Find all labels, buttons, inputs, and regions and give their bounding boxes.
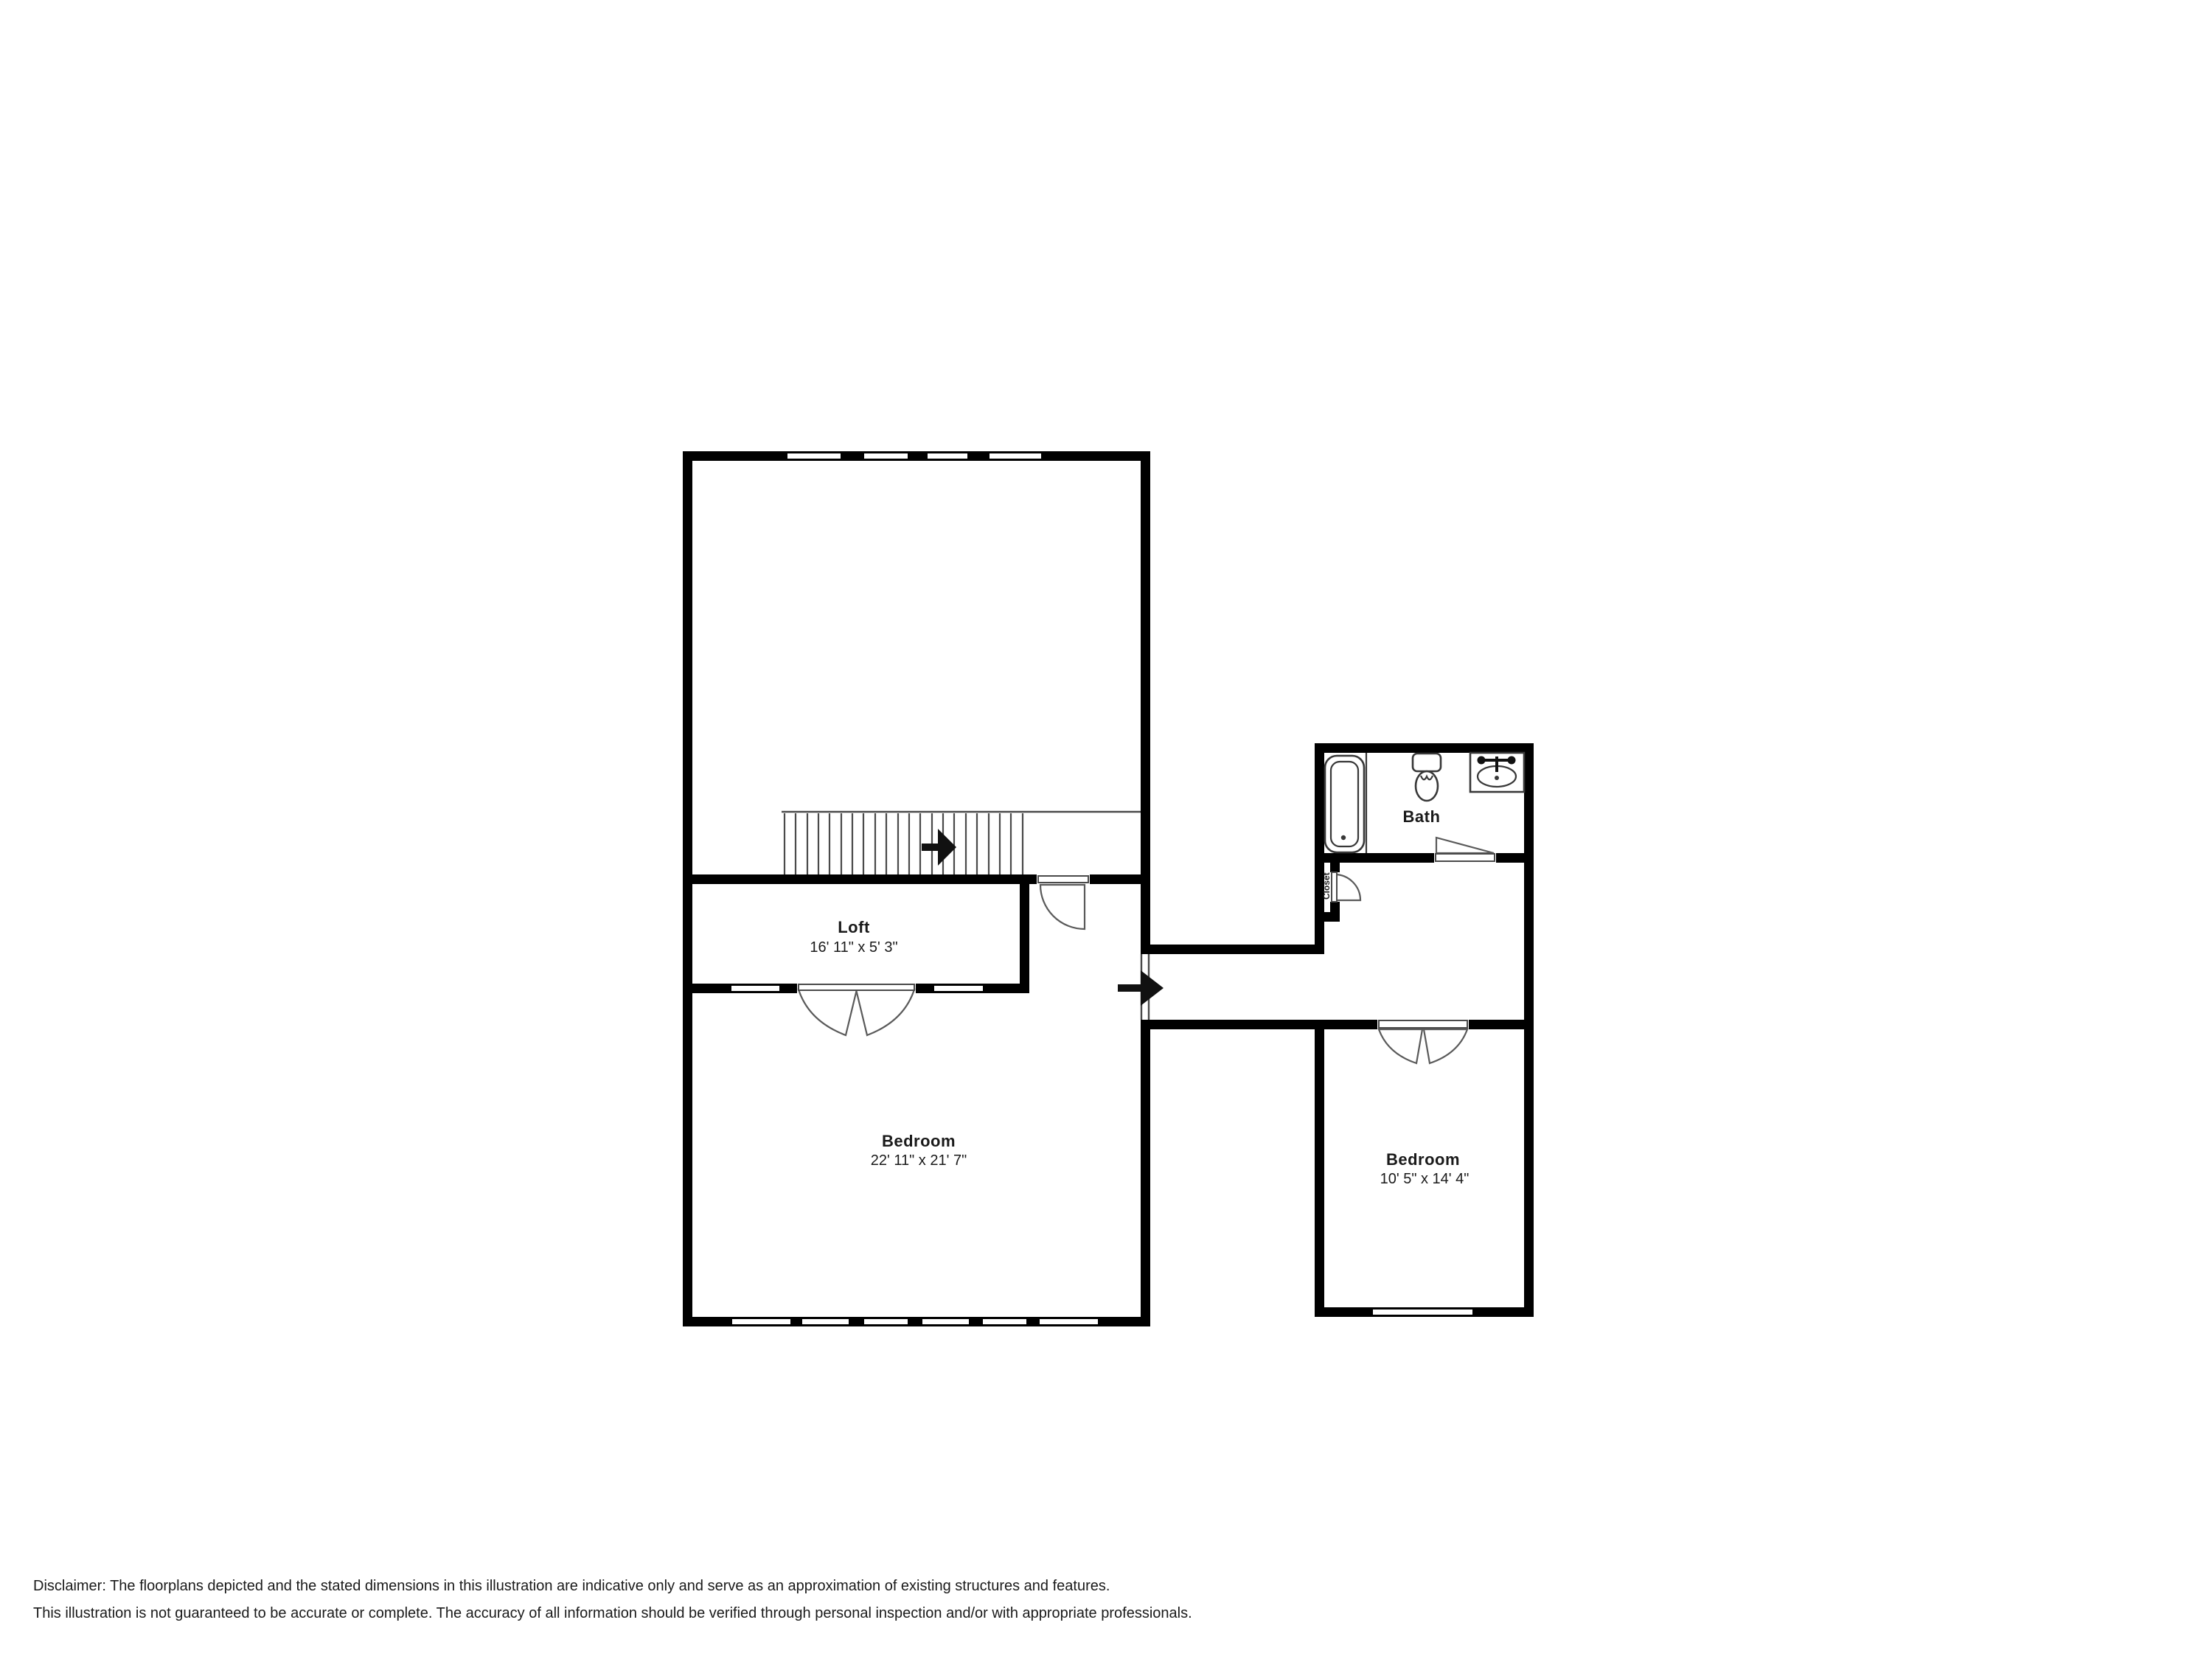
wall-hallway-bottom [1141,1020,1534,1029]
loft-label: Loft [838,918,870,936]
window-icon [802,1319,849,1324]
toilet-icon [1413,754,1441,771]
wall-bath-top [1315,743,1534,753]
door-panel [1038,876,1088,883]
floorplan-page: Loft 16' 11" x 5' 3" Bedroom 22' 11" x 2… [0,0,2212,1659]
wall-top [683,451,1150,461]
canvas-background [0,0,2212,1659]
wall-closet-bottom [1315,912,1340,922]
door-threshold [1379,1020,1467,1028]
bath-label: Bath [1403,807,1441,826]
window-icon [990,453,1041,459]
bedroom-second-label: Bedroom [1386,1150,1460,1169]
wall-right [1524,743,1534,1317]
bedroom-main-dims: 22' 11" x 21' 7" [871,1152,967,1169]
window-icon [864,1319,908,1324]
window-icon [732,1319,790,1324]
wall-hallway-top [1141,945,1324,954]
disclaimer-line-2: This illustration is not guaranteed to b… [33,1605,1192,1621]
window-icon [864,453,908,459]
window-icon [1040,1319,1098,1324]
window-icon [1373,1310,1472,1315]
bedroom-second-dims: 10' 5" x 14' 4" [1380,1171,1470,1187]
wall-loft-right [1020,874,1029,993]
window-icon [731,986,779,991]
loft-dims: 16' 11" x 5' 3" [810,939,897,956]
bathtub-drain [1341,835,1346,840]
window-icon [928,453,967,459]
disclaimer-line-1: Disclaimer: The floorplans depicted and … [33,1578,1110,1594]
bedroom-main-label: Bedroom [882,1132,956,1150]
closet-label: Closet [1321,872,1332,900]
door-panel [1332,872,1337,902]
wall-left-lower [1315,1020,1324,1317]
wall-left [683,451,692,1326]
sink-drain [1495,776,1499,780]
window-icon [922,1319,969,1324]
wall-right [1141,451,1150,1326]
sink-faucet-handle [1478,757,1486,765]
window-icon [787,453,841,459]
door-threshold [1436,854,1495,861]
sink-faucet-handle [1508,757,1516,765]
door-threshold [799,984,914,990]
window-icon [934,986,983,991]
wall-left-upper [1315,743,1324,954]
wall-bath-bottom [1315,853,1534,863]
window-icon [983,1319,1026,1324]
floorplan-svg: Loft 16' 11" x 5' 3" Bedroom 22' 11" x 2… [0,0,2212,1659]
